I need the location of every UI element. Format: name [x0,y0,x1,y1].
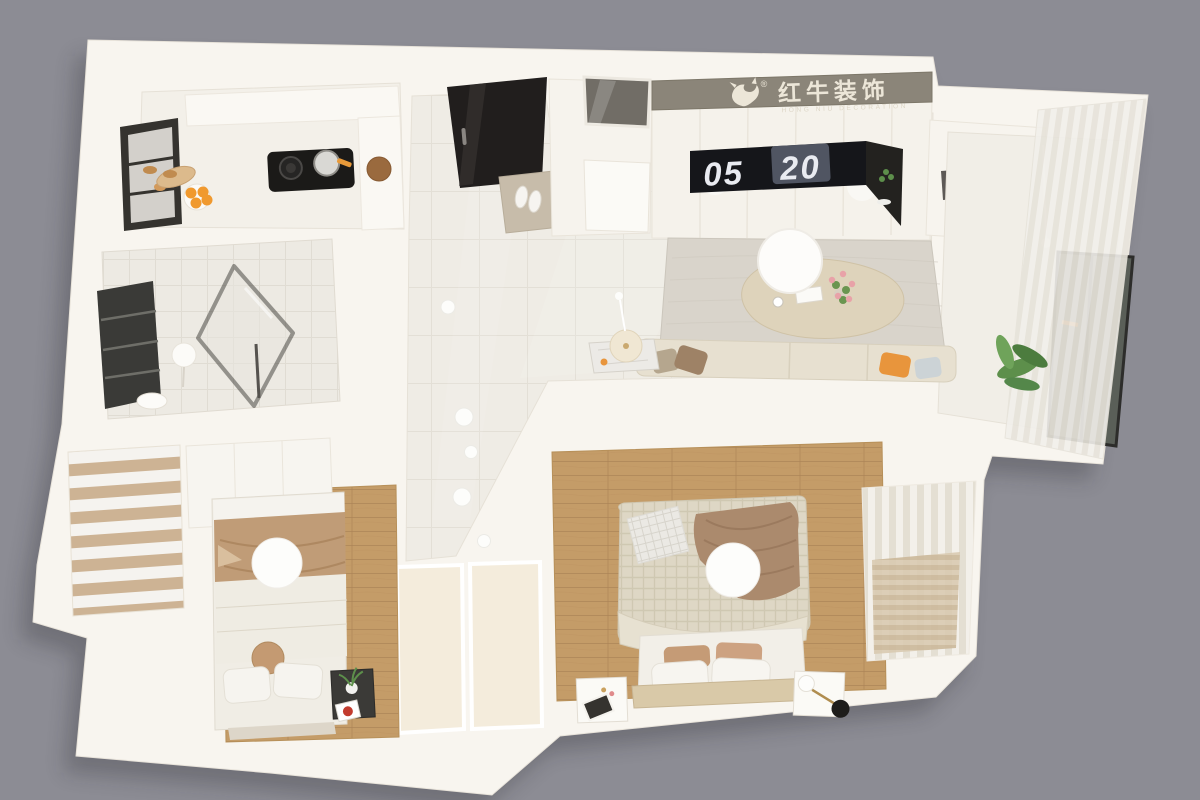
sofa [636,339,956,382]
cord-ball [615,292,623,300]
wardrobe-panel [470,562,542,729]
shelf-dishes [877,199,891,205]
mirror-stand [183,367,184,387]
bread-loaf [143,166,157,174]
fruit [601,359,608,366]
kitchen [120,83,404,231]
bread-on-board [163,170,177,178]
pleated-blanket [872,552,960,654]
white-pillow [273,662,323,699]
bathroom [97,239,340,419]
wardrobe-panel [397,565,464,733]
master-ceiling-light [706,543,760,597]
pendant-light [758,229,822,293]
window-curtains-striped [68,445,184,616]
reading-lamp-shade [798,675,815,692]
master-bed [618,496,814,708]
bedroom-nightstand [331,667,376,722]
balcony [938,99,1146,459]
coffee-cup [773,297,783,307]
round-mirror [172,343,196,367]
clock-digits-right: 20 [778,148,822,187]
bathroom-sink [137,393,167,409]
lamp-finial [623,343,629,349]
bay-window-curtains [862,481,976,661]
shoe-cabinet-door [584,160,650,232]
floorplan-3d-render: 05 20 ® 红牛装饰 HONG NIU DECORATION [0,0,1200,800]
steel-pot [314,150,340,176]
clock-digits-left: 05 [702,154,745,193]
round-serving-board [367,157,391,181]
nightstand-left [576,677,628,723]
bedroom-ceiling-light [252,538,302,588]
white-pillow [223,666,272,704]
single-bed [212,492,347,740]
nightstand-right [793,671,851,718]
cooktop-stove [267,148,355,192]
brand-name-cn: 红牛装饰 [777,77,890,107]
gray-pillow [914,356,943,379]
registered-mark: ® [760,79,767,89]
